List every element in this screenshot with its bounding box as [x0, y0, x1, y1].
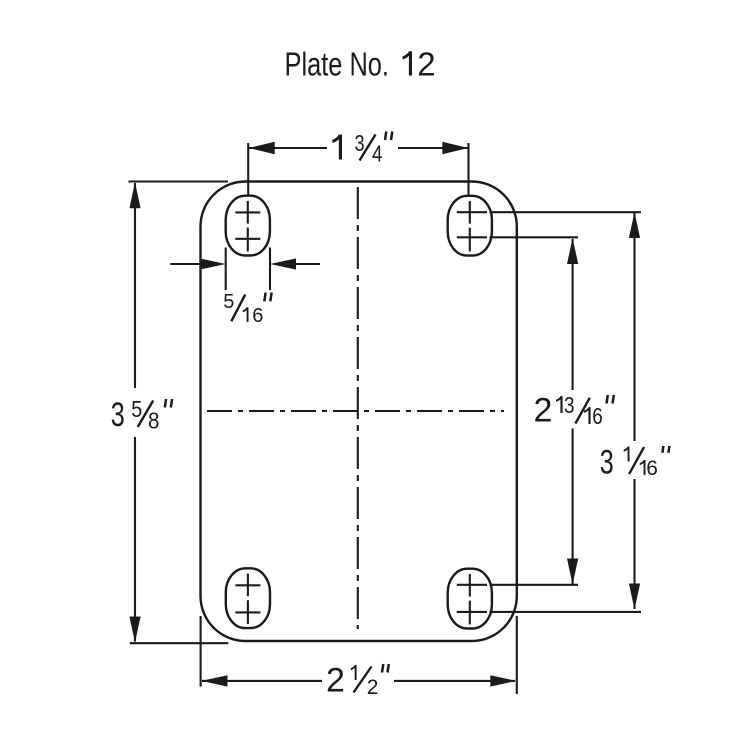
svg-text:4: 4 [372, 141, 383, 167]
svg-text:2: 2 [326, 661, 345, 699]
svg-text:2: 2 [417, 46, 435, 83]
svg-text:3: 3 [564, 392, 575, 418]
svg-text:2: 2 [534, 392, 553, 430]
svg-text:3: 3 [600, 444, 614, 482]
svg-text:6: 6 [252, 305, 263, 327]
svg-text:3: 3 [111, 396, 125, 434]
svg-text:5: 5 [223, 291, 234, 313]
svg-text:6: 6 [592, 403, 603, 429]
svg-text:6: 6 [646, 457, 658, 480]
svg-text:2: 2 [367, 676, 379, 699]
svg-text:8: 8 [148, 408, 160, 434]
svg-text:5: 5 [131, 396, 142, 422]
svg-text:Plate No.: Plate No. [285, 46, 390, 83]
svg-text:3: 3 [355, 130, 365, 156]
